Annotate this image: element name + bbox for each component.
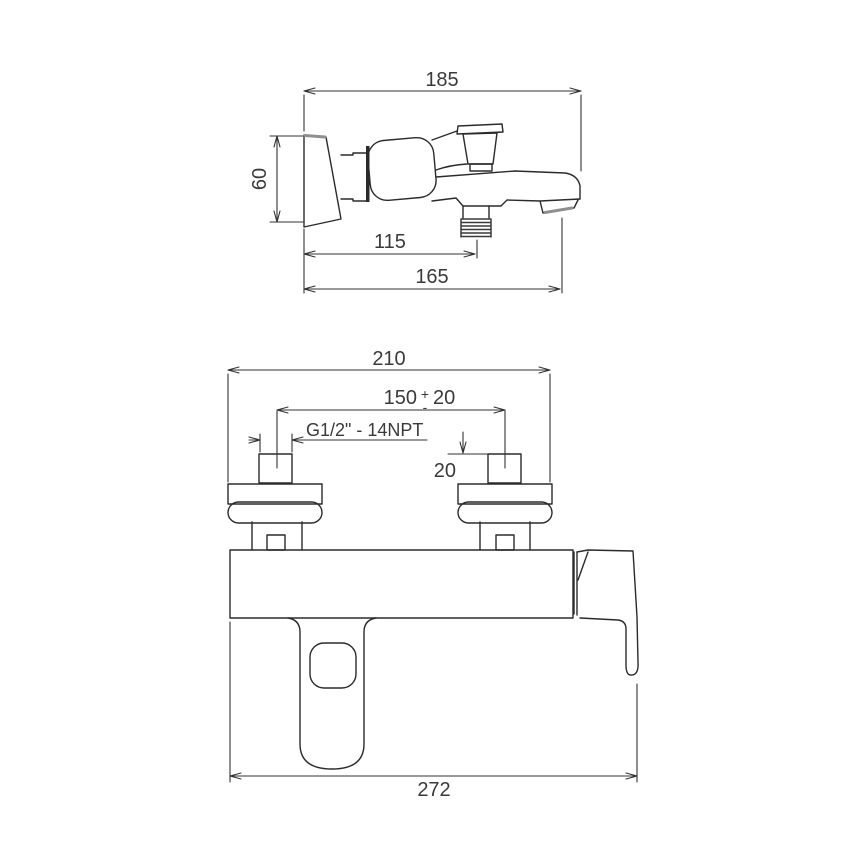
front-spout-outline <box>288 618 376 769</box>
left-thread-connector-outline <box>259 454 292 483</box>
dimension-272: 272 <box>230 622 637 801</box>
aerator-outlet-highlight <box>545 208 572 213</box>
technical-drawing-page: 185 60 115 165 <box>0 0 868 868</box>
diverter-neck-outline <box>470 164 492 171</box>
left-mounting-nut-outline <box>252 522 302 550</box>
spout-outlet-hole <box>310 643 356 688</box>
handle-outline <box>577 550 638 675</box>
left-flange-plate-outline <box>228 502 322 523</box>
dim-label-60: 60 <box>249 168 271 190</box>
dim-label-115: 115 <box>374 231 406 253</box>
tolerance-minus-sign: - <box>423 399 428 415</box>
shower-outlet-thread <box>461 219 491 238</box>
dimension-115: 115 <box>304 229 477 293</box>
front-view: 210 150 + - 20 G1/2" - 14NPT <box>228 348 638 801</box>
right-nut-notch <box>496 535 514 550</box>
handle-base-strip <box>574 552 577 615</box>
right-wall-flange-outline <box>458 484 552 504</box>
front-spout <box>288 618 376 769</box>
spout-bottom-edge <box>432 198 580 206</box>
diverter-arm-under-edge <box>436 164 467 170</box>
right-mounting-nut-outline <box>480 522 530 550</box>
dim-label-210: 210 <box>372 348 405 370</box>
faucet-dimension-drawing: 185 60 115 165 <box>0 0 868 868</box>
dimension-210: 210 <box>228 348 550 482</box>
dim-label-20: 20 <box>434 460 456 482</box>
dimension-60: 60 <box>249 136 303 222</box>
diverter-arm-top-edge <box>432 131 457 140</box>
wall-escutcheon-top-highlight <box>305 136 325 138</box>
thread-spec-label: G1/2" - 14NPT <box>306 420 423 440</box>
side-view: 185 60 115 165 <box>249 69 581 293</box>
dim-label-185: 185 <box>425 69 458 91</box>
dim-label-165: 165 <box>415 266 448 288</box>
side-view-faucet-outline <box>304 124 580 238</box>
dimension-thread-spec: G1/2" - 14NPT <box>249 420 427 452</box>
thread-side-edges <box>461 219 491 238</box>
diverter-body-outline <box>463 133 497 164</box>
dim-label-272: 272 <box>417 779 450 801</box>
mixer-lever-outline <box>367 136 438 202</box>
left-nut-notch <box>267 535 285 550</box>
shower-outlet-pipe <box>463 206 489 218</box>
dimension-20: 20 <box>434 432 488 482</box>
dim-label-tolerance-20: 20 <box>433 387 455 409</box>
front-handle <box>574 550 638 675</box>
right-flange-plate-outline <box>458 502 552 523</box>
dim-label-150: 150 <box>384 387 417 409</box>
faucet-body-outline <box>230 550 573 618</box>
handle-inner-edge <box>578 552 588 580</box>
dimension-165: 165 <box>304 218 562 293</box>
connector-pipe-outline <box>341 153 366 201</box>
left-wall-flange-outline <box>228 484 322 504</box>
wall-escutcheon-outline <box>304 135 341 227</box>
spout-top-edge <box>436 171 580 199</box>
left-supply-connection <box>228 454 322 550</box>
